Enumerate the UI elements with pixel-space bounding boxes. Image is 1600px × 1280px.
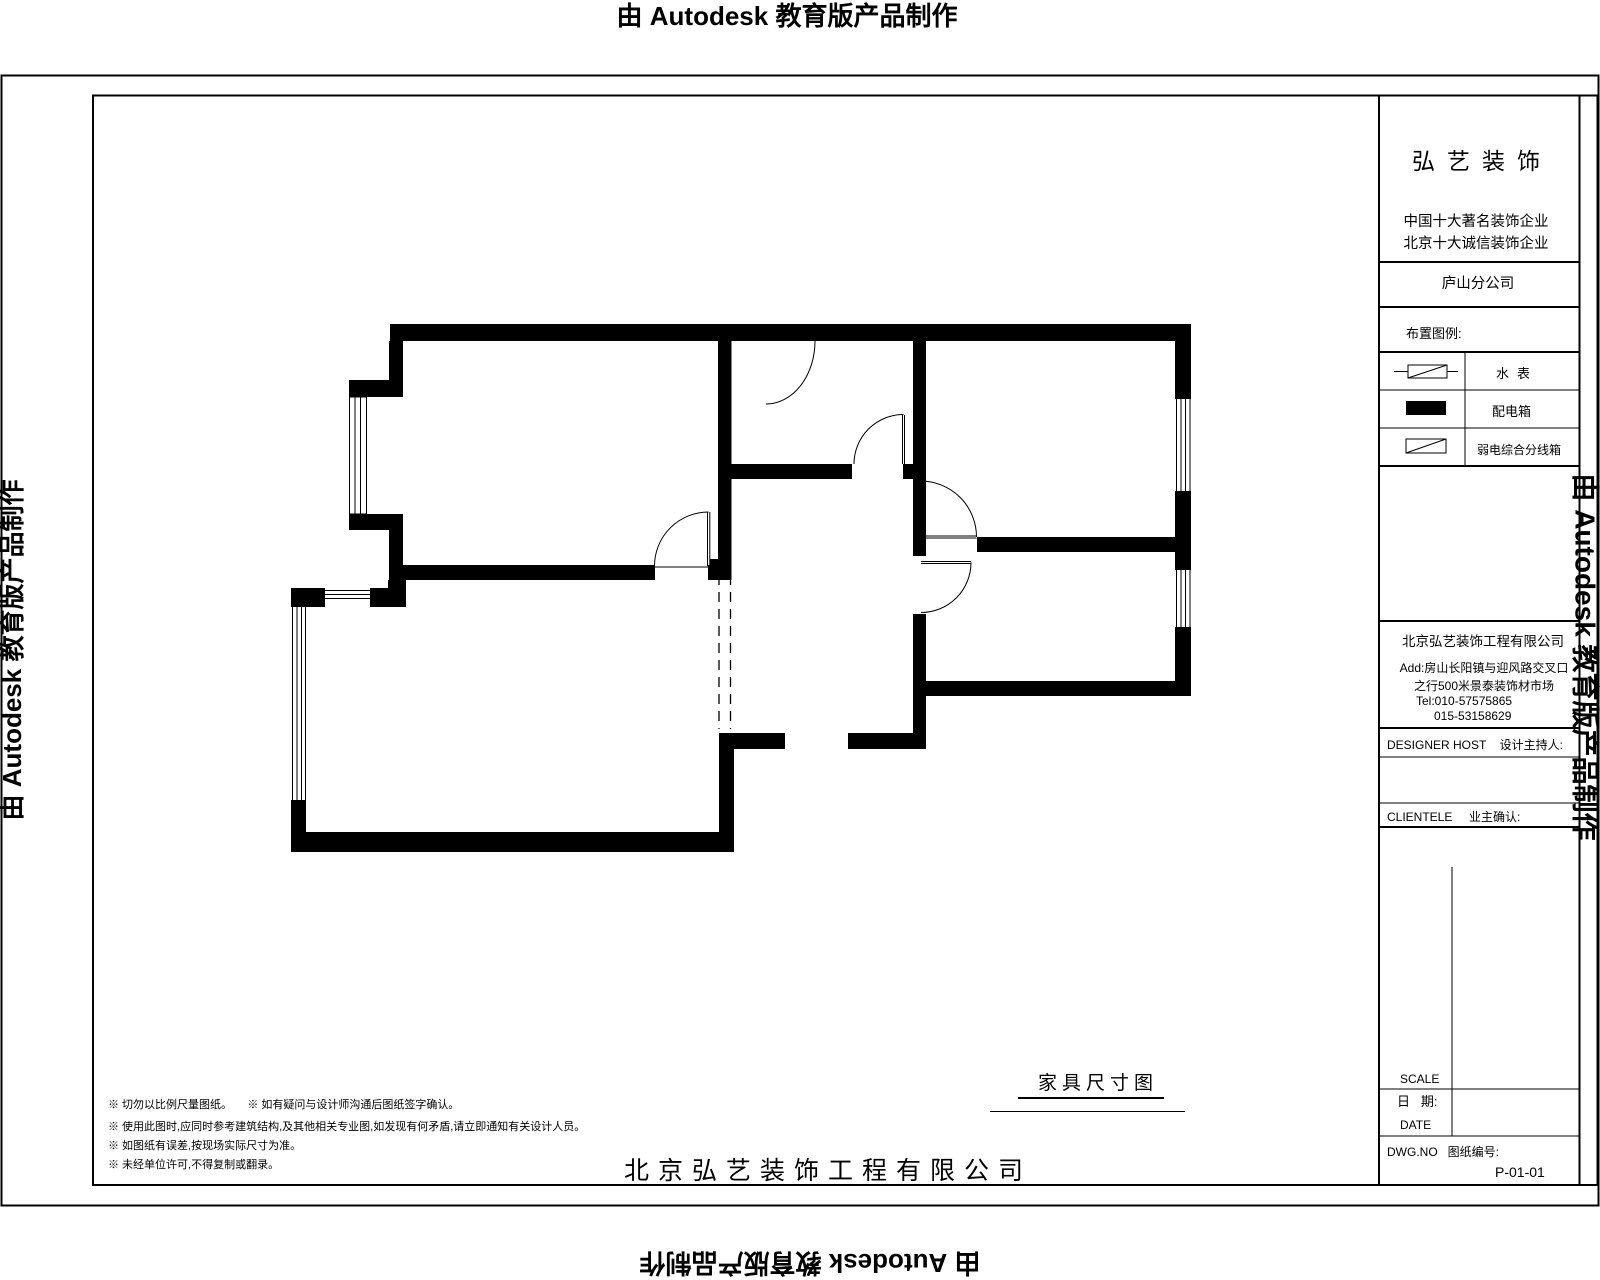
svg-text:※ 切勿以比例尺量图纸。 ※ 如有疑问与设计师沟通后: ※ 切勿以比例尺量图纸。 ※ 如有疑问与设计师沟通后图纸签字确认。: [108, 1097, 459, 1111]
svg-text:015-53158629: 015-53158629: [1434, 709, 1512, 723]
svg-text:DWG.NO 图纸编号:: DWG.NO 图纸编号:: [1387, 1144, 1499, 1159]
svg-text:布置图例:: 布置图例:: [1406, 326, 1462, 341]
svg-text:水表: 水表: [1496, 366, 1538, 381]
svg-text:之行500米景泰装饰材市场: 之行500米景泰装饰材市场: [1414, 678, 1554, 693]
svg-text:※ 未经单位许可,不得复制或翻录。: ※ 未经单位许可,不得复制或翻录。: [108, 1157, 279, 1171]
svg-text:中国十大著名装饰企业: 中国十大著名装饰企业: [1404, 212, 1549, 230]
svg-text:由 Autodesk 教育版产品制作: 由 Autodesk 教育版产品制作: [640, 1248, 981, 1278]
svg-text:北京弘艺装饰工程有限公司: 北京弘艺装饰工程有限公司: [624, 1157, 1032, 1185]
svg-text:SCALE: SCALE: [1400, 1072, 1439, 1086]
svg-text:庐山分公司: 庐山分公司: [1442, 275, 1515, 292]
svg-text:北京十大诚信装饰企业: 北京十大诚信装饰企业: [1404, 234, 1549, 252]
svg-text:家具尺寸图: 家具尺寸图: [1038, 1072, 1158, 1094]
svg-text:弘艺装饰: 弘艺装饰: [1412, 148, 1552, 174]
svg-text:日 期:: 日 期:: [1397, 1094, 1437, 1109]
svg-text:※ 如图纸有误差,按现场实际尺寸为准。: ※ 如图纸有误差,按现场实际尺寸为准。: [108, 1138, 301, 1152]
svg-text:Tel:010-57575865: Tel:010-57575865: [1416, 694, 1512, 708]
svg-text:配电箱: 配电箱: [1492, 404, 1531, 419]
svg-text:DESIGNER HOST 设计主持人:: DESIGNER HOST 设计主持人:: [1387, 737, 1563, 752]
svg-text:P-01-01: P-01-01: [1495, 1164, 1545, 1180]
svg-text:※ 使用此图时,应同时参考建筑结构,及其他相关专业图,如发现: ※ 使用此图时,应同时参考建筑结构,及其他相关专业图,如发现有何矛盾,请立即通知…: [108, 1119, 585, 1133]
svg-text:由 Autodesk 教育版产品制作: 由 Autodesk 教育版产品制作: [1570, 473, 1600, 840]
svg-text:Add:房山长阳镇与迎风路交叉口: Add:房山长阳镇与迎风路交叉口: [1400, 660, 1569, 675]
svg-text:由 Autodesk 教育版产品制作: 由 Autodesk 教育版产品制作: [617, 1, 958, 31]
svg-text:CLIENTELE 业主确认:: CLIENTELE 业主确认:: [1387, 810, 1520, 824]
svg-text:北京弘艺装饰工程有限公司: 北京弘艺装饰工程有限公司: [1402, 634, 1564, 649]
svg-text:弱电综合分线箱: 弱电综合分线箱: [1477, 442, 1561, 457]
svg-text:由 Autodesk 教育版产品制作: 由 Autodesk 教育版产品制作: [0, 480, 27, 821]
svg-text:DATE: DATE: [1400, 1118, 1431, 1132]
